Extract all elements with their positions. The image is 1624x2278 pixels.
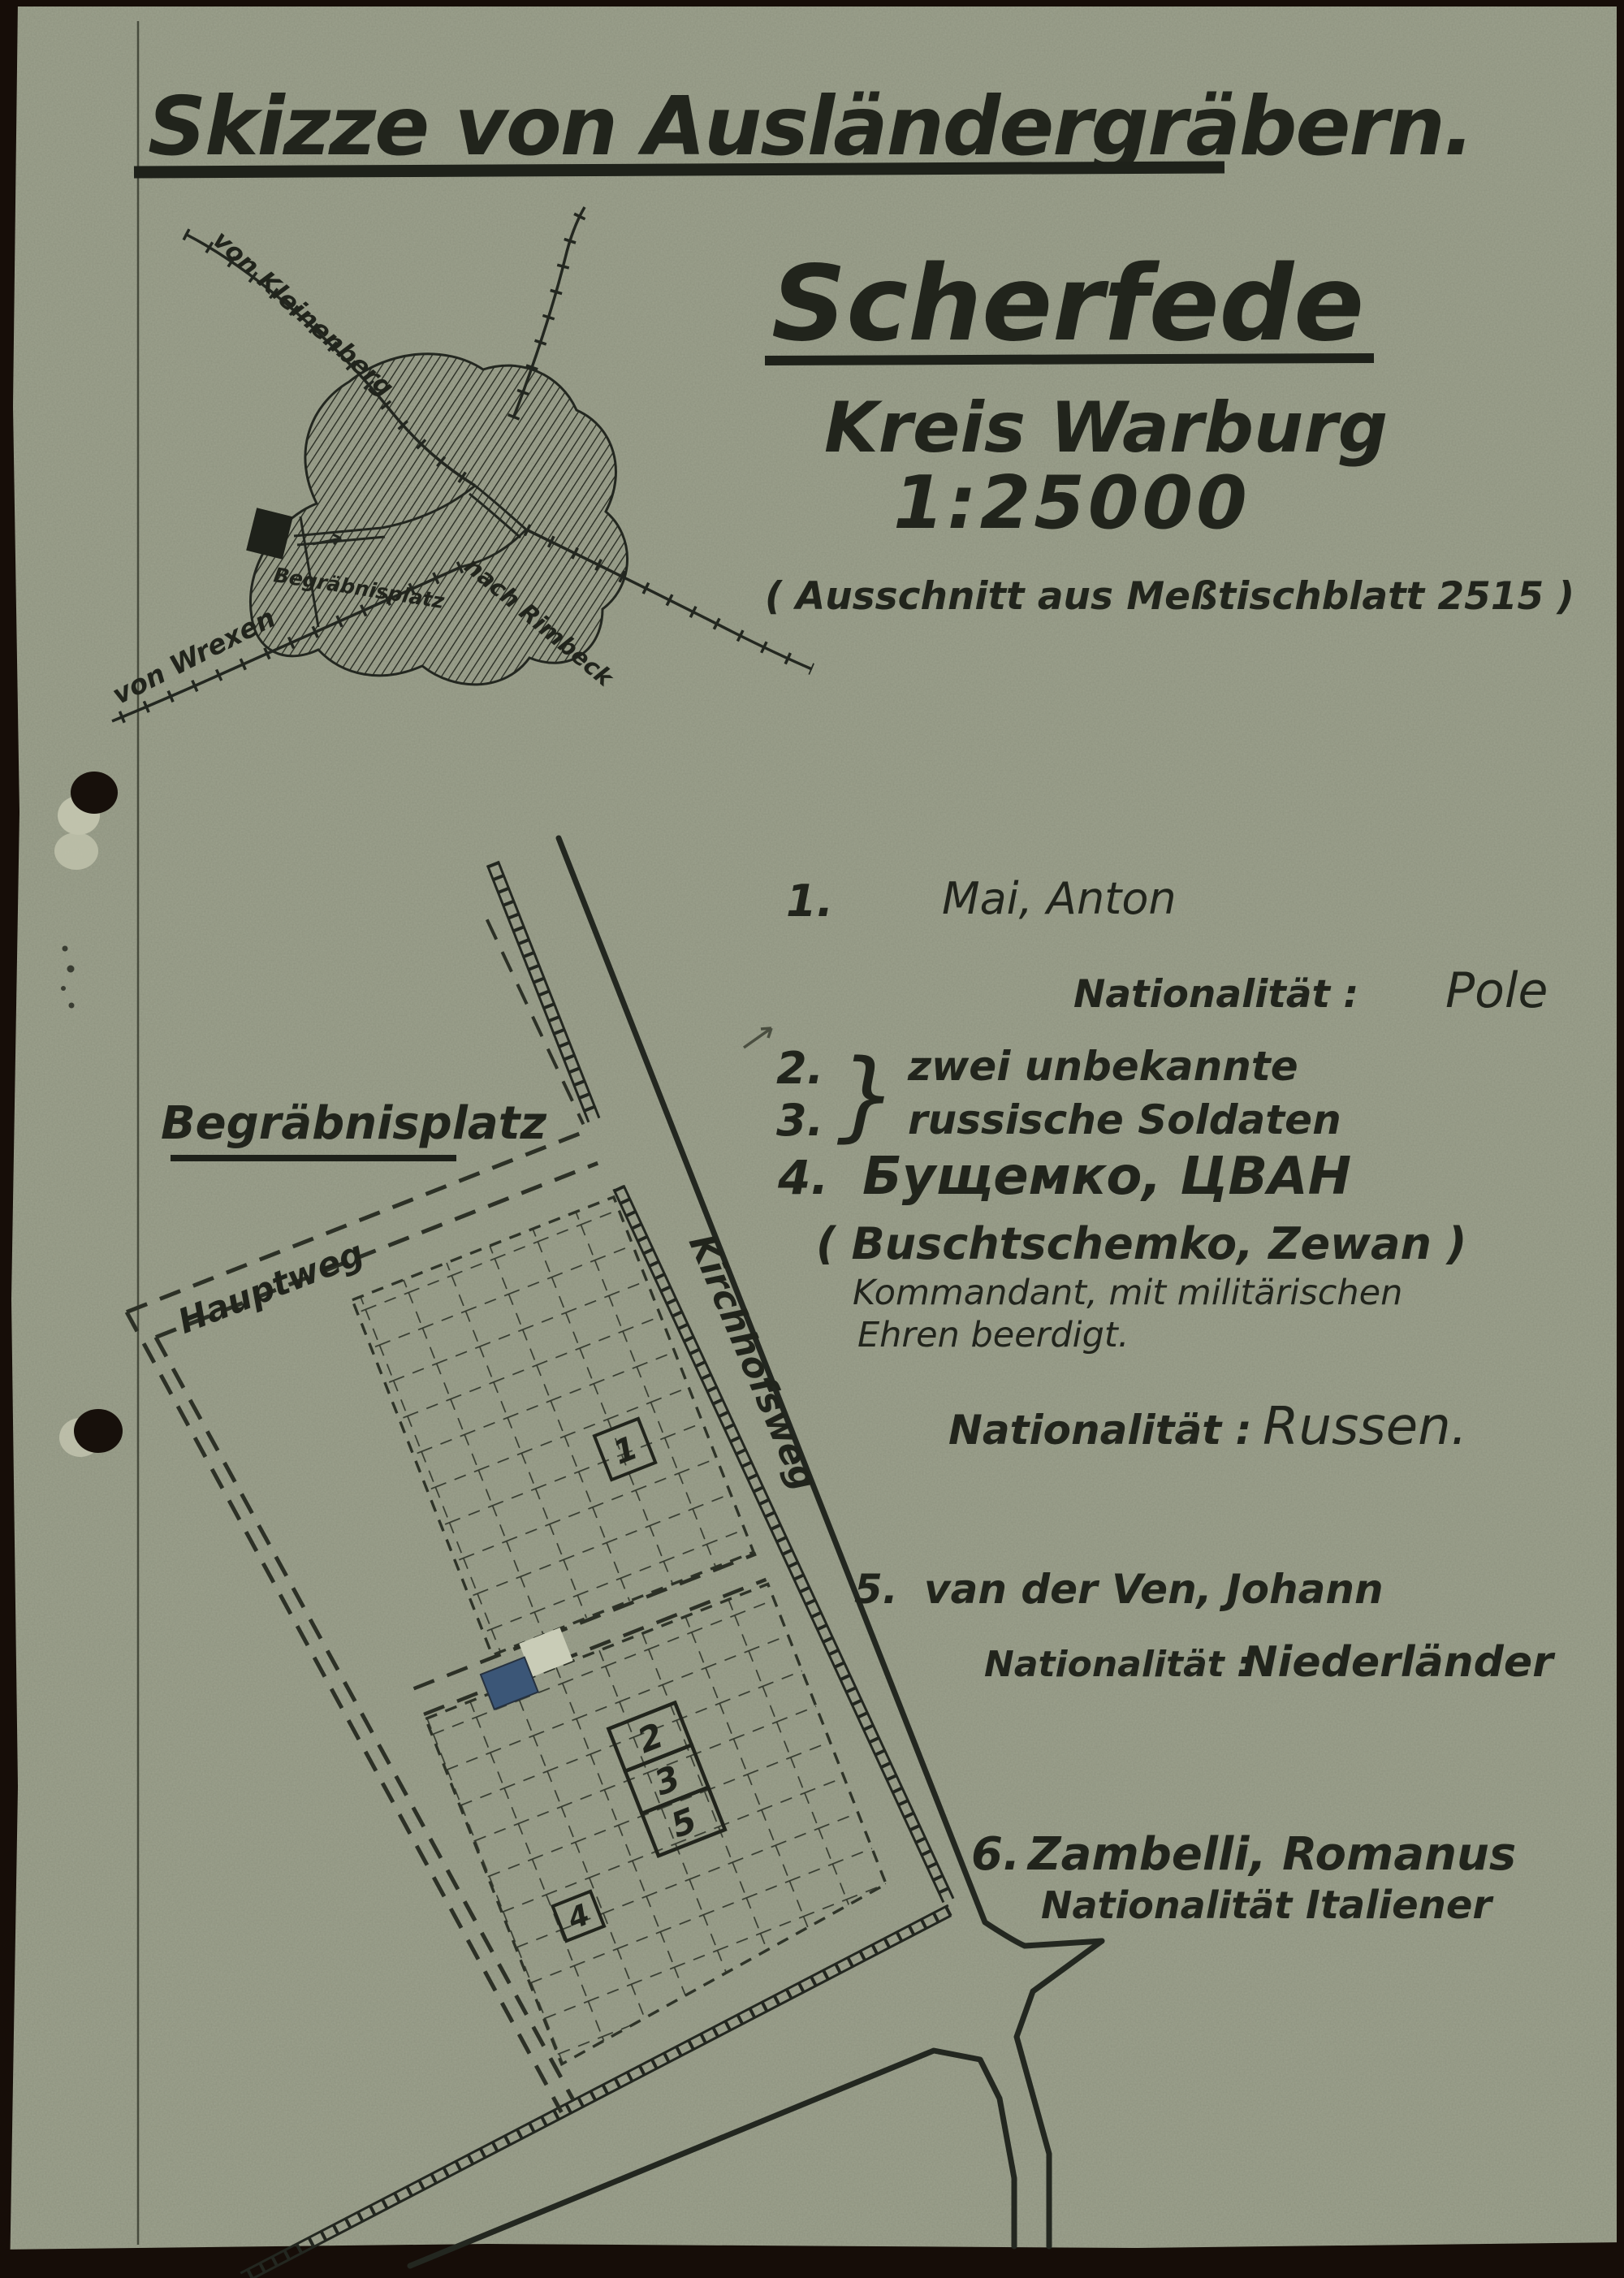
- label-begraebnisplatz: Begräbnisplatz: [161, 1097, 546, 1150]
- header-place: Scherfede: [771, 244, 1364, 365]
- scan-edge-top: [0, 0, 1624, 6]
- header-source-note: ( Ausschnitt aus Meßtischblatt 2515 ): [765, 574, 1574, 619]
- grave-2-number: 2.: [776, 1043, 823, 1094]
- grave-5-nationality: Niederländer: [1242, 1638, 1556, 1687]
- grave-1-nat-label: Nationalität :: [1073, 972, 1358, 1017]
- grave-5-name: van der Ven, Johann: [924, 1566, 1384, 1613]
- grave-4-nationality: Russen.: [1263, 1397, 1467, 1457]
- grave-6-name: Zambelli, Romanus: [1026, 1828, 1516, 1881]
- grave-23-line1: zwei unbekannte: [907, 1043, 1298, 1090]
- title-underline: [134, 167, 1224, 172]
- document-scan: Skizze von Ausländergräbern. Scherfede K…: [0, 0, 1624, 2278]
- grave-1-name: Mai, Anton: [942, 873, 1177, 924]
- header-district: Kreis Warburg: [824, 387, 1388, 469]
- page-title: Skizze von Ausländergräbern.: [148, 79, 1473, 174]
- grave-23-line2: russische Soldaten: [908, 1096, 1341, 1143]
- grave-5-nat-label: Nationalität :: [984, 1644, 1251, 1685]
- grave-4-name-cyrillic: Бущемко, ЦВАН: [862, 1147, 1351, 1207]
- grave-1-nationality: Pole: [1445, 962, 1548, 1019]
- grave-6-nat-label: Nationalität :: [1041, 1883, 1320, 1927]
- grave-4-number: 4.: [777, 1150, 828, 1205]
- grave-4-nat-label: Nationalität :: [948, 1407, 1252, 1454]
- grave-4-name-latin: ( Buschtschemko, Zewan ): [816, 1218, 1466, 1269]
- grave-6-number: 6.: [971, 1828, 1020, 1881]
- grave-4-note2: Ehren beerdigt.: [857, 1315, 1129, 1355]
- punch-hole: [71, 772, 118, 814]
- scan-edge-right: [1617, 0, 1624, 2278]
- grave-3-number: 3.: [776, 1095, 823, 1146]
- grave-6-nationality: Italiener: [1306, 1882, 1494, 1928]
- punch-hole: [74, 1409, 123, 1453]
- grave-1-number: 1.: [786, 875, 833, 927]
- grave-5-number: 5.: [854, 1566, 898, 1613]
- grave-23-brace: }: [836, 1040, 898, 1152]
- punch-hole-ghost: [54, 832, 98, 870]
- grave-4-note1: Kommandant, mit militärischen: [853, 1273, 1402, 1313]
- place-underline: [765, 358, 1374, 361]
- header-scale: 1:25000: [893, 460, 1250, 546]
